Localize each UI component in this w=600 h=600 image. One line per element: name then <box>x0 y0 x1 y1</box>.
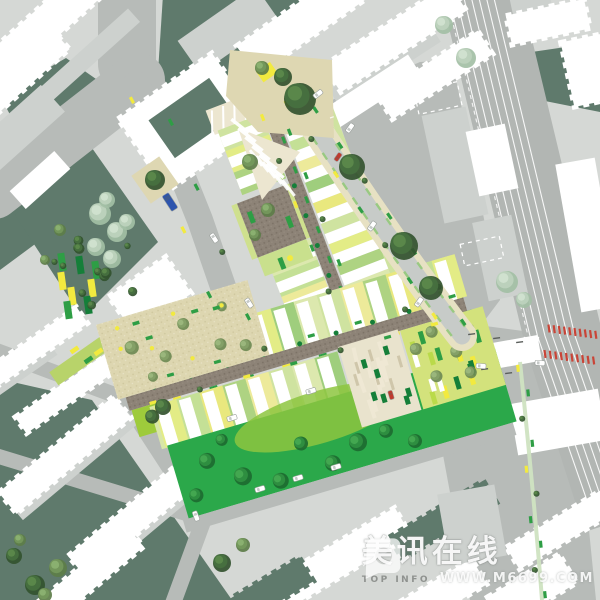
tree-highlight <box>40 589 46 595</box>
tree-highlight <box>102 269 107 274</box>
tree-highlight <box>147 172 156 181</box>
tree-highlight <box>499 273 509 283</box>
tree-highlight <box>520 416 523 419</box>
tree-highlight <box>437 18 445 26</box>
tree-highlight <box>89 240 97 248</box>
tree-highlight <box>79 290 82 293</box>
tree-highlight <box>263 204 269 210</box>
tree-highlight <box>362 178 365 181</box>
tree-highlight <box>257 62 263 68</box>
car-windshield <box>537 361 540 364</box>
tree-highlight <box>52 259 55 262</box>
tree-highlight <box>383 243 386 246</box>
tree-highlight <box>51 561 59 569</box>
context-building <box>437 485 507 566</box>
car <box>476 363 486 369</box>
tree-highlight <box>533 568 536 571</box>
tree-highlight <box>338 348 341 351</box>
tree-highlight <box>403 307 406 310</box>
tree-highlight <box>458 50 467 59</box>
masterplan-drawing <box>0 0 600 600</box>
tree-highlight <box>276 70 284 78</box>
tree-highlight <box>55 225 60 230</box>
tree-highlight <box>125 243 128 246</box>
tree-highlight <box>238 539 244 545</box>
tree-highlight <box>250 230 255 235</box>
tree-highlight <box>109 224 118 233</box>
tree-highlight <box>518 294 525 301</box>
tree-highlight <box>61 263 64 266</box>
tree-highlight <box>309 137 312 140</box>
tree-highlight <box>15 535 20 540</box>
tree-highlight <box>288 86 302 100</box>
tree-highlight <box>95 268 99 272</box>
tree-highlight <box>105 252 113 260</box>
tree-highlight <box>8 550 15 557</box>
tree-highlight <box>27 577 36 586</box>
tree-highlight <box>75 237 79 241</box>
site-plan-canvas: 美讯在线 TOP INFO WWW.M6699.COM <box>0 0 600 600</box>
tree-highlight <box>41 256 46 261</box>
tree-highlight <box>244 156 251 163</box>
tree-highlight <box>121 216 128 223</box>
tree-highlight <box>422 278 433 289</box>
tree-highlight <box>326 289 329 292</box>
tree-highlight <box>75 244 80 249</box>
tree-highlight <box>220 250 223 253</box>
car <box>535 360 545 366</box>
tree-highlight <box>393 235 406 248</box>
tree-highlight <box>101 194 108 201</box>
tree-highlight <box>92 205 102 215</box>
tree-highlight <box>534 491 537 494</box>
car-windshield <box>478 364 481 367</box>
tree-highlight <box>157 401 164 408</box>
tree-highlight <box>262 346 265 349</box>
tree-highlight <box>88 302 92 306</box>
tree-highlight <box>320 217 323 220</box>
tree-highlight <box>342 156 354 168</box>
tree-highlight <box>277 159 280 162</box>
tree-highlight <box>198 387 201 390</box>
tree-highlight <box>215 556 223 564</box>
tree-highlight <box>129 288 133 292</box>
